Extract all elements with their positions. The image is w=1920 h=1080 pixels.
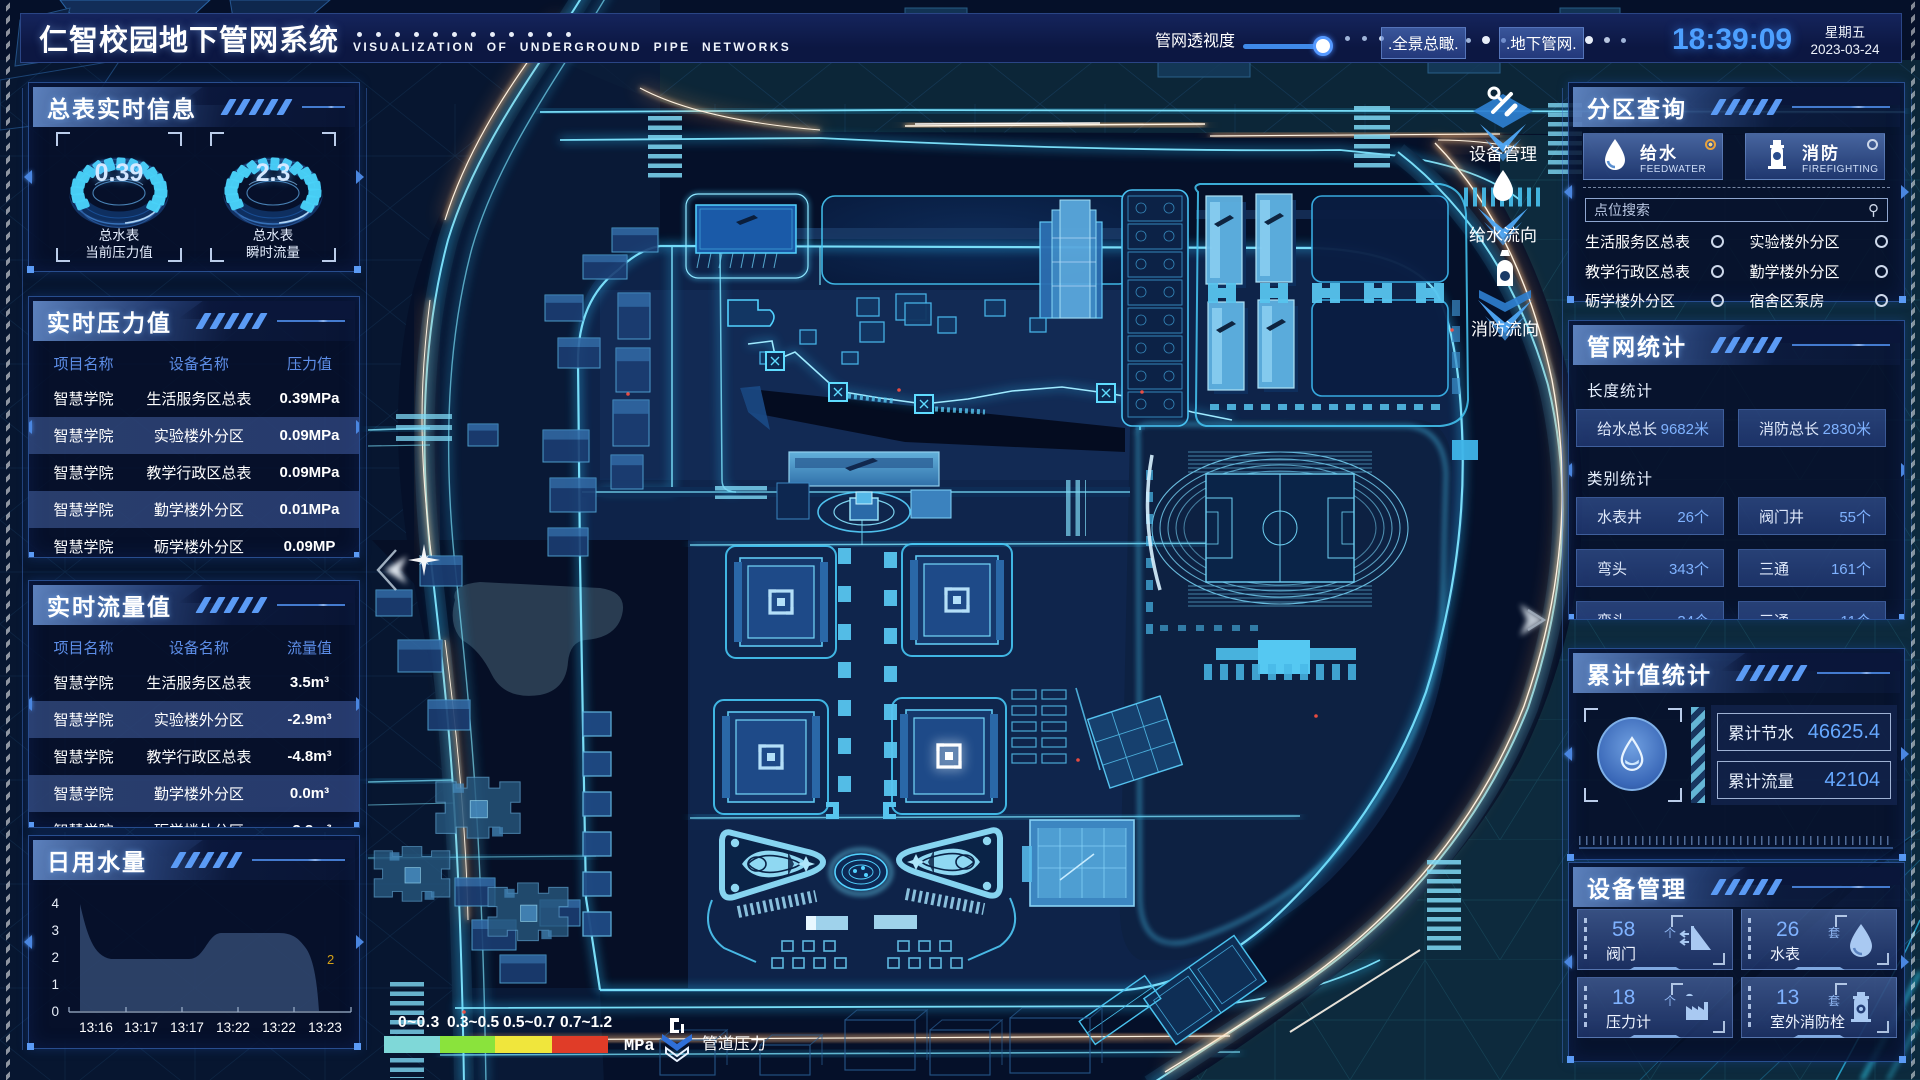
svg-text:设备管理: 设备管理 bbox=[1469, 145, 1537, 164]
svg-text:0: 0 bbox=[51, 1004, 59, 1019]
svg-text:13:22: 13:22 bbox=[216, 1020, 250, 1035]
svg-text:13:17: 13:17 bbox=[170, 1020, 204, 1035]
svg-text:2: 2 bbox=[51, 950, 59, 965]
svg-text:13:22: 13:22 bbox=[262, 1020, 296, 1035]
svg-text:给水流向: 给水流向 bbox=[1469, 226, 1537, 245]
svg-text:13:23: 13:23 bbox=[308, 1020, 342, 1035]
svg-text:3: 3 bbox=[51, 923, 59, 938]
svg-text:消防流向: 消防流向 bbox=[1471, 320, 1539, 339]
svg-text:2: 2 bbox=[327, 952, 334, 967]
svg-text:4: 4 bbox=[51, 896, 59, 911]
svg-text:13:16: 13:16 bbox=[79, 1020, 113, 1035]
svg-text:1: 1 bbox=[51, 977, 59, 992]
svg-text:13:17: 13:17 bbox=[124, 1020, 158, 1035]
